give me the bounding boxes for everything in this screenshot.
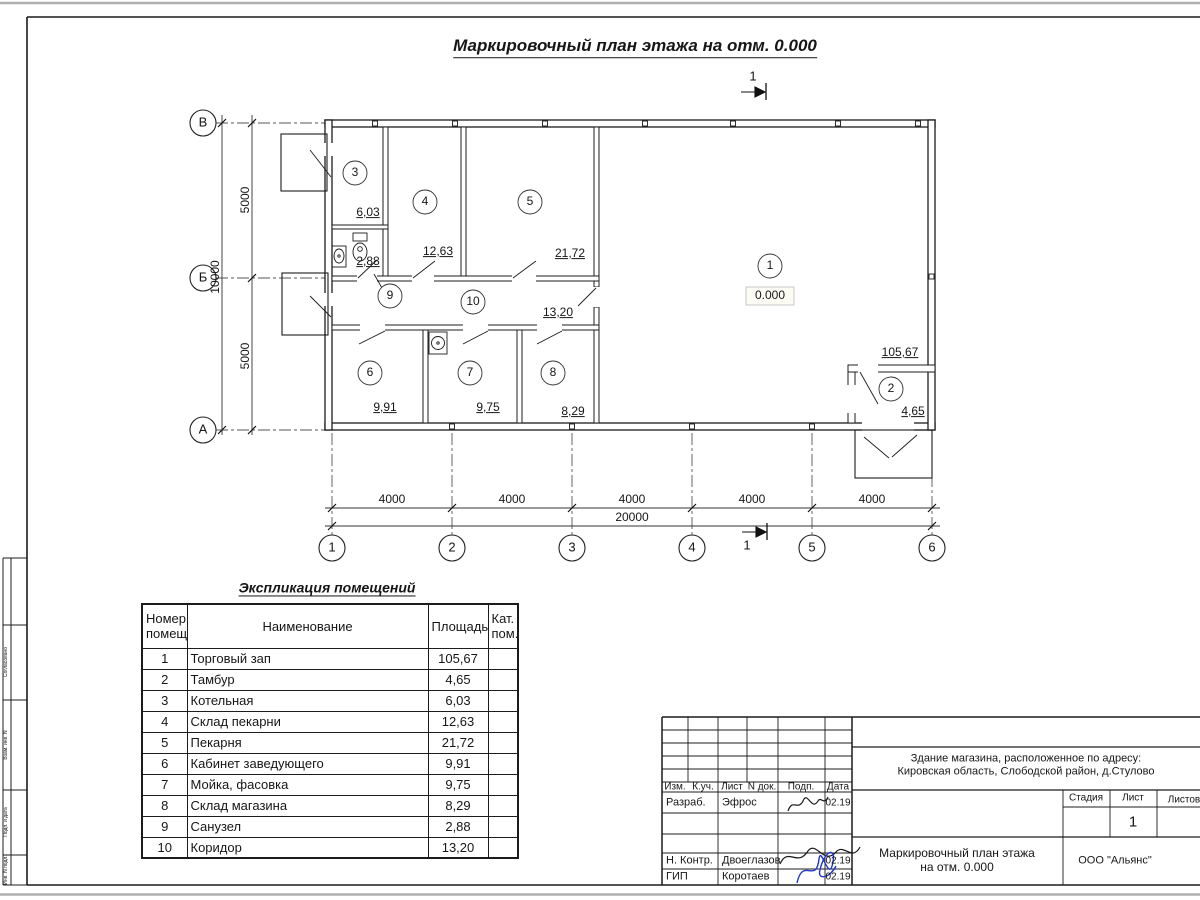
tb-ncontrol-name: Двоеглазов	[722, 855, 780, 868]
tb-sheet-number: 1	[1129, 813, 1137, 830]
side-stamp-label-3: Подп. и дата	[4, 807, 10, 836]
col-header-number: Номер помещ.	[142, 604, 187, 648]
dim-5000-top: 5000	[239, 187, 253, 214]
sink-fixture-wc	[332, 246, 346, 267]
table-row: 6Кабинет заведующего9,91	[142, 753, 518, 774]
dim-4000-1: 4000	[379, 493, 406, 507]
row-area: 9,91	[428, 753, 488, 774]
col-header-area: Площадь	[428, 604, 488, 648]
tb-ncontrol-label: Н. Контр.	[666, 855, 713, 868]
table-row: 7Мойка, фасовка9,75	[142, 774, 518, 795]
table-row: 2Тамбур4,65	[142, 669, 518, 690]
side-stamp-label-4: Инв. N подл.	[4, 855, 10, 884]
door-leaves	[310, 150, 917, 458]
table-row: 4Склад пекарни12,63	[142, 711, 518, 732]
sink-fixture-washroom	[429, 332, 447, 354]
row-name: Склад пекарни	[187, 711, 428, 732]
axis-col-6: 6	[928, 541, 935, 556]
row-area: 6,03	[428, 690, 488, 711]
room-1-number: 1	[767, 259, 774, 273]
side-stamp-label-1: Согласовано	[4, 647, 10, 677]
level-mark: 0.000	[755, 289, 785, 303]
row-cat	[488, 648, 518, 669]
tb-sheet-label: Лист	[1122, 792, 1144, 804]
tb-col-kuch: К.уч.	[692, 781, 714, 793]
row-num: 7	[142, 774, 187, 795]
room-7-number: 7	[467, 366, 474, 380]
room-5-area: 21,72	[555, 247, 585, 261]
axis-col-3: 3	[568, 541, 575, 556]
axis-col-5: 5	[808, 541, 815, 556]
row-num: 9	[142, 816, 187, 837]
table-row: 9Санузел2,88	[142, 816, 518, 837]
row-num: 4	[142, 711, 187, 732]
side-stamp-label-2: Взам. инв. N	[4, 730, 10, 759]
row-cat	[488, 669, 518, 690]
dim-5000-bottom: 5000	[239, 343, 253, 370]
dim-4000-3: 4000	[619, 493, 646, 507]
row-name: Пекарня	[187, 732, 428, 753]
row-num: 6	[142, 753, 187, 774]
room-4-area: 12,63	[423, 245, 453, 259]
tb-gip-date: 02.19	[825, 871, 850, 883]
row-area: 9,75	[428, 774, 488, 795]
tb-object-address: Здание магазина, расположенное по адресу…	[856, 752, 1196, 777]
row-name: Котельная	[187, 690, 428, 711]
row-area: 2,88	[428, 816, 488, 837]
row-area: 4,65	[428, 669, 488, 690]
tb-col-list: Лист	[721, 781, 743, 793]
row-name: Мойка, фасовка	[187, 774, 428, 795]
axis-row-b: Б	[199, 271, 208, 286]
room-9-number: 9	[387, 289, 394, 303]
row-num: 8	[142, 795, 187, 816]
table-row: 5Пекарня21,72	[142, 732, 518, 753]
axis-col-1: 1	[328, 541, 335, 556]
dim-4000-4: 4000	[739, 493, 766, 507]
section-label-bottom: 1	[743, 539, 750, 554]
dim-10000: 10000	[209, 260, 223, 293]
tb-doc-title: Маркировочный план этажа на отм. 0.000	[862, 847, 1052, 875]
room-3-number: 3	[352, 166, 359, 180]
row-name: Тамбур	[187, 669, 428, 690]
row-area: 21,72	[428, 732, 488, 753]
room-8-number: 8	[550, 366, 557, 380]
tb-developed-date: 02.19	[825, 797, 850, 809]
tb-stage-label: Стадия	[1069, 792, 1103, 804]
table-row: 10Коридор13,20	[142, 837, 518, 858]
room-5-number: 5	[527, 195, 534, 209]
room-9-area: 2,88	[356, 255, 379, 269]
page-title: Маркировочный план этажа на отм. 0.000	[453, 36, 817, 58]
room-8-area: 8,29	[561, 405, 584, 419]
row-name: Коридор	[187, 837, 428, 858]
room-1-area: 105,67	[882, 346, 919, 360]
row-name: Санузел	[187, 816, 428, 837]
door-openings	[324, 143, 915, 432]
room-4-number: 4	[422, 195, 429, 209]
room-10-area: 13,20	[543, 306, 573, 320]
row-name: Кабинет заведующего	[187, 753, 428, 774]
table-row: 8Склад магазина8,29	[142, 795, 518, 816]
row-name: Торговый зап	[187, 648, 428, 669]
drawing-sheet: Маркировочный план этажа на отм. 0.000 1…	[0, 0, 1200, 900]
table-row: 3Котельная6,03	[142, 690, 518, 711]
tb-company: ООО "Альянс"	[1078, 855, 1152, 868]
signature-developed	[788, 797, 828, 811]
row-area: 105,67	[428, 648, 488, 669]
room-7-area: 9,75	[476, 401, 499, 415]
row-cat	[488, 690, 518, 711]
row-num: 1	[142, 648, 187, 669]
row-area: 13,20	[428, 837, 488, 858]
axis-row-v: В	[199, 116, 208, 131]
row-cat	[488, 795, 518, 816]
room-10-number: 10	[466, 295, 479, 309]
room-6-number: 6	[367, 366, 374, 380]
table-row: 1Торговый зап105,67	[142, 648, 518, 669]
row-cat	[488, 732, 518, 753]
room-6-area: 9,91	[373, 401, 396, 415]
room-2-number: 2	[888, 382, 895, 396]
axis-col-4: 4	[688, 541, 695, 556]
tb-developed-label: Разраб.	[666, 797, 706, 810]
tb-col-ndok: N док.	[748, 781, 777, 793]
col-header-cat: Кат. пом.	[488, 604, 518, 648]
row-num: 2	[142, 669, 187, 690]
explication-table: Номер помещ. Наименование Площадь Кат. п…	[141, 603, 519, 859]
explication-title: Экспликация помещений	[239, 579, 416, 596]
row-area: 12,63	[428, 711, 488, 732]
tb-sheets-label: Листов	[1168, 794, 1200, 806]
row-num: 3	[142, 690, 187, 711]
tb-col-data: Дата	[827, 781, 849, 793]
row-cat	[488, 837, 518, 858]
dim-4000-2: 4000	[499, 493, 526, 507]
row-cat	[488, 816, 518, 837]
row-cat	[488, 711, 518, 732]
section-mark-top	[741, 83, 766, 100]
row-num: 5	[142, 732, 187, 753]
row-num: 10	[142, 837, 187, 858]
dim-20000: 20000	[615, 511, 648, 525]
axis-col-2: 2	[448, 541, 455, 556]
tb-gip-label: ГИП	[666, 871, 688, 884]
tb-col-podp: Подп.	[788, 781, 815, 793]
row-name: Склад магазина	[187, 795, 428, 816]
col-header-name: Наименование	[187, 604, 428, 648]
tb-ncontrol-date: 02.19	[825, 855, 850, 867]
row-cat	[488, 753, 518, 774]
room-3-area: 6,03	[356, 206, 379, 220]
tb-developed-name: Эфрос	[722, 797, 757, 810]
tb-gip-name: Коротаев	[722, 871, 770, 884]
tb-col-izm: Изм.	[664, 781, 685, 793]
row-cat	[488, 774, 518, 795]
axis-row-a: А	[199, 423, 208, 438]
room-2-area: 4,65	[901, 405, 924, 419]
dim-4000-5: 4000	[859, 493, 886, 507]
section-label-top: 1	[749, 70, 756, 85]
row-area: 8,29	[428, 795, 488, 816]
